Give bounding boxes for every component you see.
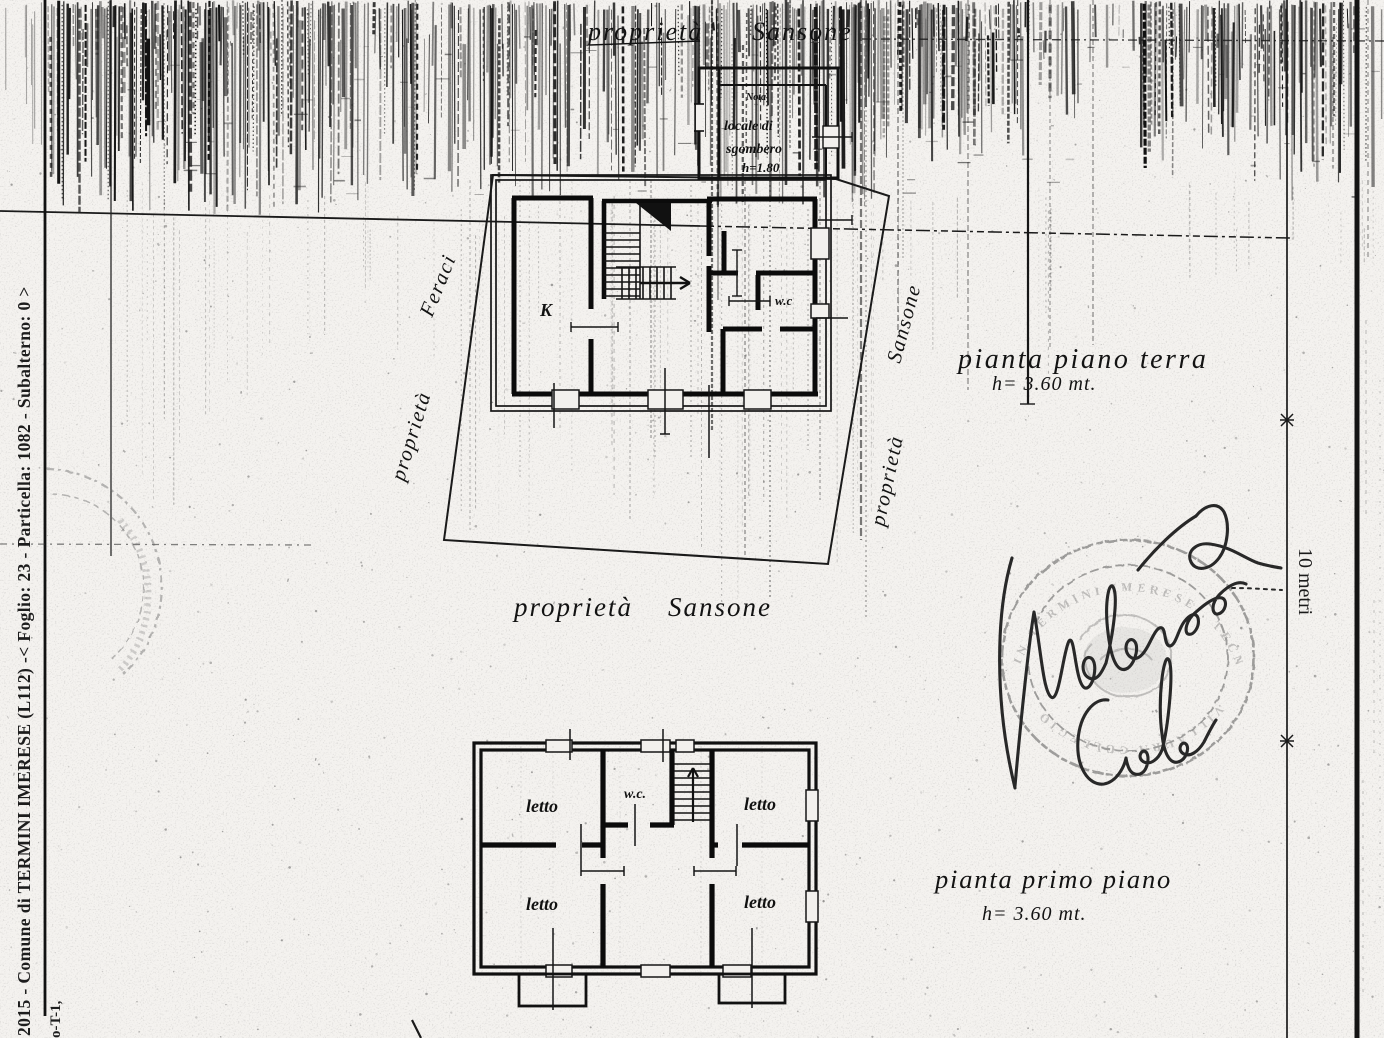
svg-text:h= 3.60 mt.: h= 3.60 mt. bbox=[992, 373, 1097, 395]
svg-text:h=1.80: h=1.80 bbox=[742, 160, 780, 175]
svg-text:sgombero: sgombero bbox=[725, 142, 782, 157]
svg-text:w.c.: w.c. bbox=[624, 787, 646, 802]
svg-text:letto: letto bbox=[744, 892, 776, 912]
svg-text:locale di: locale di bbox=[724, 119, 773, 134]
svg-text:Sansone: Sansone bbox=[752, 17, 853, 46]
svg-text:pianta piano terra: pianta piano terra bbox=[956, 344, 1208, 375]
svg-text:w.c: w.c bbox=[775, 293, 792, 308]
svg-text:letto: letto bbox=[744, 794, 776, 814]
svg-text:h= 3.60 mt.: h= 3.60 mt. bbox=[982, 903, 1087, 925]
svg-text:Nota: Nota bbox=[745, 92, 766, 103]
svg-text:proprietà: proprietà bbox=[512, 592, 633, 622]
svg-text:2015 - Comune di TERMINI IMERE: 2015 - Comune di TERMINI IMERESE (L112) … bbox=[14, 286, 34, 1036]
svg-text:K: K bbox=[539, 300, 554, 320]
svg-text:Sansone: Sansone bbox=[668, 592, 772, 622]
svg-text:pianta primo piano: pianta primo piano bbox=[933, 864, 1172, 894]
svg-text:10 metri: 10 metri bbox=[1294, 548, 1316, 616]
svg-text:o-T-1,: o-T-1, bbox=[48, 1000, 64, 1038]
